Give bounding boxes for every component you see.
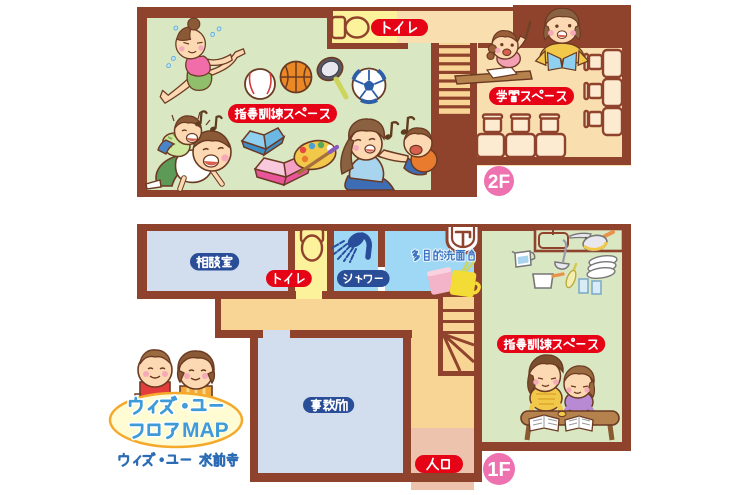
svg-text:1F: 1F	[487, 459, 510, 481]
svg-text:MAP: MAP	[182, 419, 229, 442]
svg-text:2F: 2F	[488, 172, 510, 193]
